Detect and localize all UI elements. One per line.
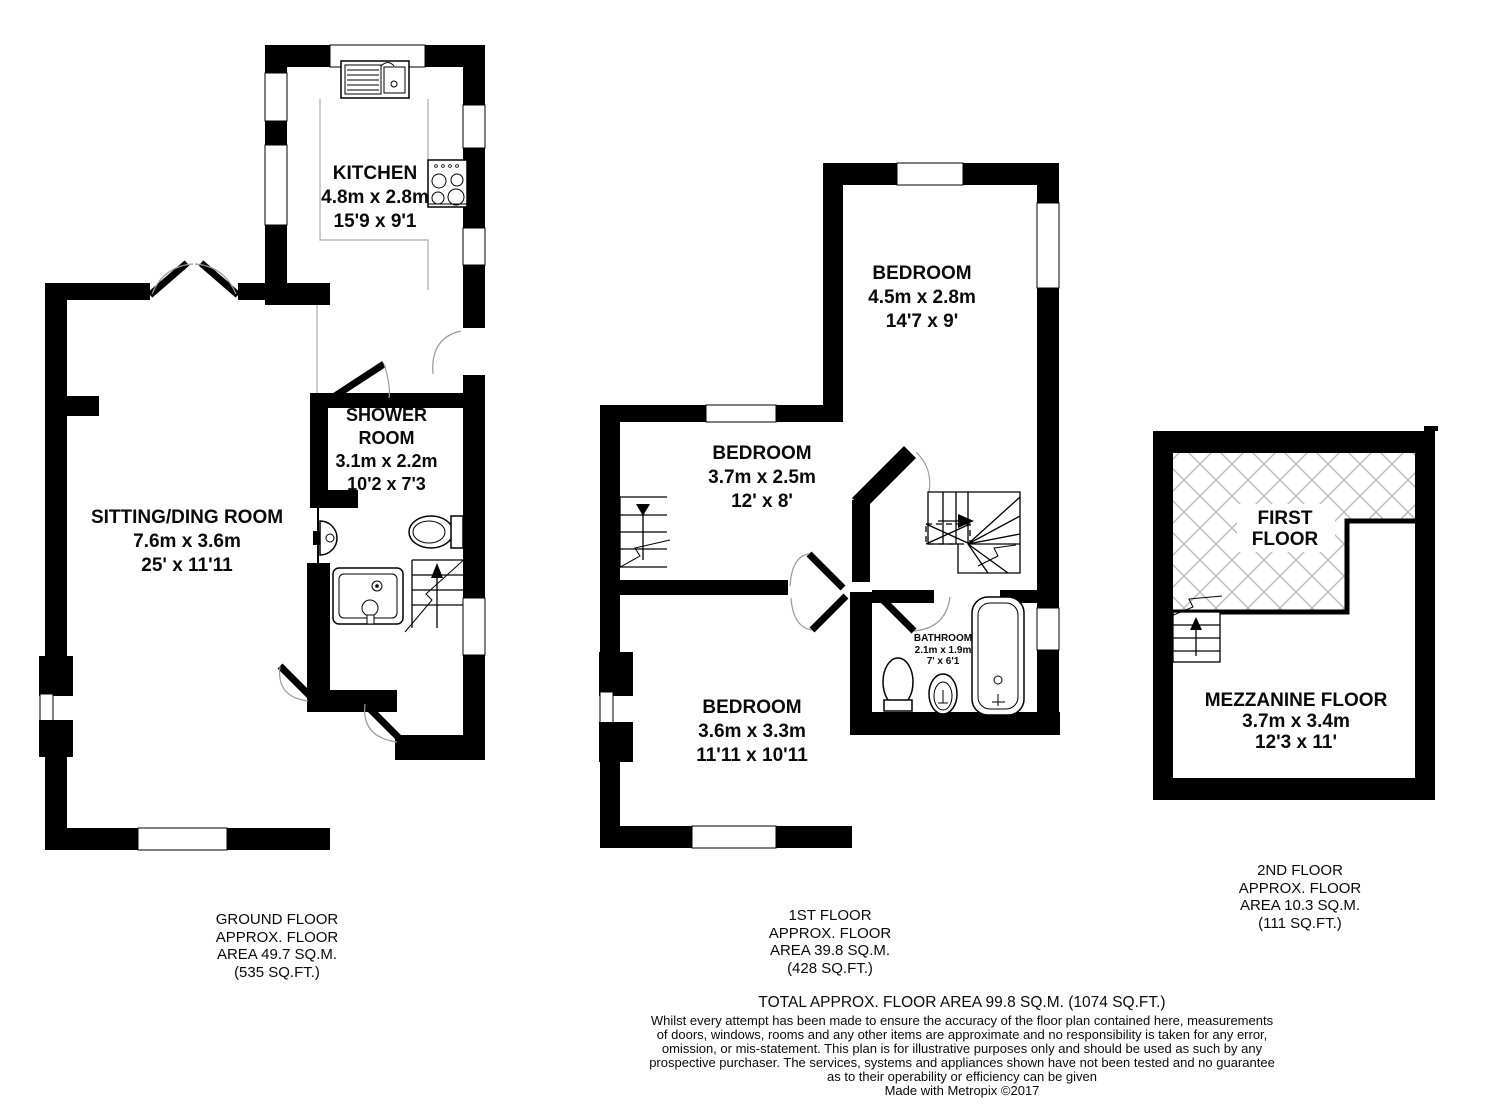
credit-line: Made with Metropix ©2017 (582, 1084, 1342, 1098)
room-size-imperial: 12'3 x 11' (1186, 732, 1406, 753)
door-arc (384, 364, 389, 398)
caption-line: APPROX. FLOOR (720, 925, 940, 943)
caption-line: AREA 39.8 SQ.M. (720, 942, 940, 960)
room-size-metric: 2.1m x 1.9m (893, 645, 993, 657)
area-name: FLOOR (1235, 529, 1335, 550)
room-name: ROOM (314, 427, 459, 450)
window (692, 826, 776, 848)
window (1037, 608, 1059, 650)
room-size-imperial: 15'9 x 9'1 (275, 210, 475, 234)
door-leaf (280, 666, 311, 697)
bay-window (599, 652, 633, 762)
caption-line: (535 SQ.FT.) (167, 964, 387, 982)
door-leaf (335, 364, 384, 396)
mezzanine-label: MEZZANINE FLOOR 3.7m x 3.4m 12'3 x 11' (1186, 690, 1406, 753)
door-arc (916, 452, 930, 492)
first-floor-void-label: FIRST FLOOR (1235, 508, 1335, 550)
door-leaf (201, 263, 238, 295)
room-name: KITCHEN (275, 162, 475, 186)
window (897, 163, 963, 185)
room-name: BEDROOM (672, 442, 852, 466)
sitting-dining-label: SITTING/DING ROOM 7.6m x 3.6m 25' x 11'1… (47, 506, 327, 578)
kitchen-sink-icon (341, 61, 409, 98)
room-name: BEDROOM (832, 262, 1012, 286)
first-floor-caption: 1ST FLOOR APPROX. FLOOR AREA 39.8 SQ.M. … (720, 907, 940, 977)
window (463, 105, 485, 148)
stairs-icon-ground (405, 556, 468, 632)
door-leaf (812, 596, 846, 630)
room-size-imperial: 7' x 6'1 (893, 656, 993, 668)
room-size-metric: 4.5m x 2.8m (832, 286, 1012, 310)
disclaimer-line: omission, or mis-statement. This plan is… (582, 1042, 1342, 1056)
caption-line: (428 SQ.FT.) (720, 960, 940, 978)
bedroom-large-label: BEDROOM 4.5m x 2.8m 14'7 x 9' (832, 262, 1012, 334)
chimney-breast (67, 396, 99, 416)
bedroom-mid-label: BEDROOM 3.7m x 2.5m 12' x 8' (672, 442, 852, 514)
room-name: MEZZANINE FLOOR (1186, 690, 1406, 711)
bedroom-lower-label: BEDROOM 3.6m x 3.3m 11'11 x 10'11 (657, 696, 847, 768)
room-name: BATHROOM (893, 633, 993, 645)
door-arc (790, 554, 809, 586)
room-size-metric: 3.1m x 2.2m (314, 450, 459, 473)
room-size-imperial: 25' x 11'11 (47, 554, 327, 578)
window (463, 598, 485, 655)
stairs-icon-first-up (926, 492, 1020, 573)
disclaimer-line: Whilst every attempt has been made to en… (582, 1014, 1342, 1028)
room-size-metric: 7.6m x 3.6m (47, 530, 327, 554)
shower-room-label: SHOWER ROOM 3.1m x 2.2m 10'2 x 7'3 (314, 404, 459, 496)
caption-line: APPROX. FLOOR (1190, 880, 1410, 898)
door-leaf (809, 554, 843, 588)
door-opening (463, 328, 485, 375)
caption-line: GROUND FLOOR (167, 911, 387, 929)
basin-icon (929, 674, 957, 714)
kitchen-label: KITCHEN 4.8m x 2.8m 15'9 x 9'1 (275, 162, 475, 234)
caption-line: 1ST FLOOR (720, 907, 940, 925)
room-size-metric: 3.6m x 3.3m (657, 720, 847, 744)
disclaimer-line: of doors, windows, rooms and any other i… (582, 1028, 1342, 1042)
room-size-metric: 3.7m x 2.5m (672, 466, 852, 490)
caption-line: APPROX. FLOOR (167, 929, 387, 947)
bay-window (39, 656, 73, 757)
door-arc (791, 598, 812, 630)
room-size-imperial: 10'2 x 7'3 (314, 473, 459, 496)
room-size-metric: 4.8m x 2.8m (275, 186, 475, 210)
room-size-imperial: 11'11 x 10'11 (657, 744, 847, 768)
room-size-imperial: 14'7 x 9' (832, 310, 1012, 334)
total-area-line: TOTAL APPROX. FLOOR AREA 99.8 SQ.M. (107… (562, 993, 1362, 1012)
caption-line: 2ND FLOOR (1190, 862, 1410, 880)
window (265, 73, 287, 121)
bathroom-label: BATHROOM 2.1m x 1.9m 7' x 6'1 (893, 633, 993, 668)
area-name: FIRST (1235, 508, 1335, 529)
room-name: SITTING/DING ROOM (47, 506, 327, 530)
caption-line: AREA 49.7 SQ.M. (167, 946, 387, 964)
caption-line: AREA 10.3 SQ.M. (1190, 897, 1410, 915)
room-size-imperial: 12' x 8' (672, 490, 852, 514)
window (706, 405, 776, 422)
window (1037, 203, 1059, 288)
toilet-icon (409, 516, 463, 548)
room-name: SHOWER (314, 404, 459, 427)
door-arc (433, 331, 461, 374)
room-name: BEDROOM (657, 696, 847, 720)
stairs-icon-first-down (615, 497, 670, 570)
disclaimer-line: as to their operability or efficiency ca… (582, 1070, 1342, 1084)
window (138, 828, 227, 850)
caption-line: (111 SQ.FT.) (1190, 915, 1410, 933)
floorplan-page: KITCHEN 4.8m x 2.8m 15'9 x 9'1 SITTING/D… (0, 0, 1500, 1110)
disclaimer: Whilst every attempt has been made to en… (582, 1014, 1342, 1098)
door-leaf (150, 263, 187, 295)
ground-floor-caption: GROUND FLOOR APPROX. FLOOR AREA 49.7 SQ.… (167, 911, 387, 981)
shower-tray-icon (333, 568, 403, 624)
disclaimer-line: prospective purchaser. The services, sys… (582, 1056, 1342, 1070)
second-floor-caption: 2ND FLOOR APPROX. FLOOR AREA 10.3 SQ.M. … (1190, 862, 1410, 932)
room-size-metric: 3.7m x 3.4m (1186, 711, 1406, 732)
